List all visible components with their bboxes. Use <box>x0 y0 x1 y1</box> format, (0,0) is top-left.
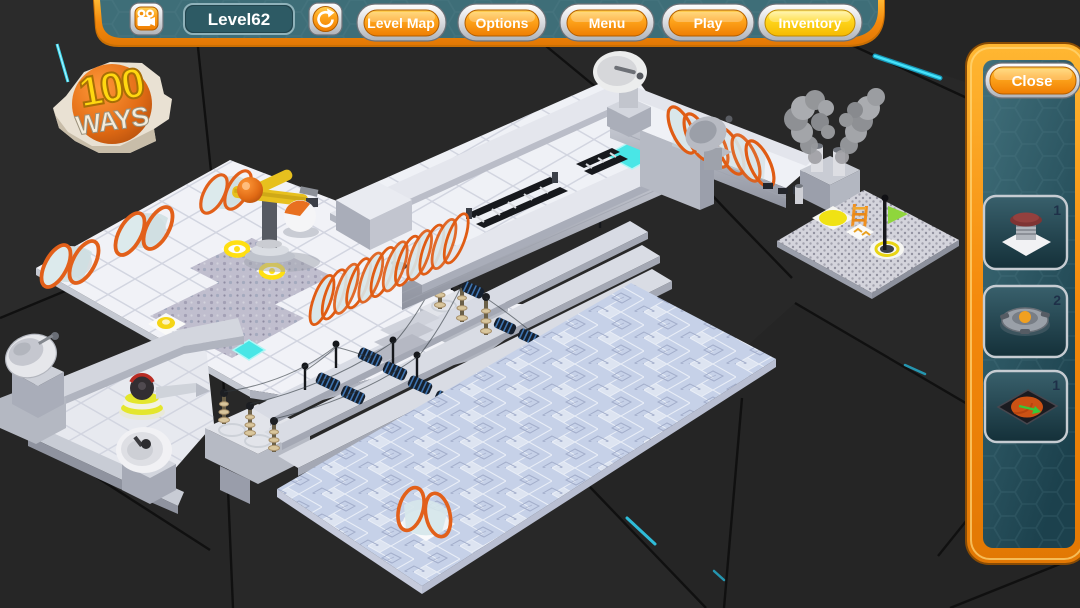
svg-text:1: 1 <box>1052 377 1060 393</box>
svg-text:1: 1 <box>1053 202 1061 218</box>
svg-text:Level Map: Level Map <box>367 15 435 31</box>
svg-text:Play: Play <box>694 15 723 31</box>
svg-text:Level62: Level62 <box>208 10 270 29</box>
svg-text:Menu: Menu <box>589 15 626 31</box>
svg-text:Options: Options <box>476 15 529 31</box>
svg-text:Close: Close <box>1012 73 1053 90</box>
svg-text:2: 2 <box>1053 292 1061 308</box>
svg-text:Inventory: Inventory <box>778 15 841 31</box>
